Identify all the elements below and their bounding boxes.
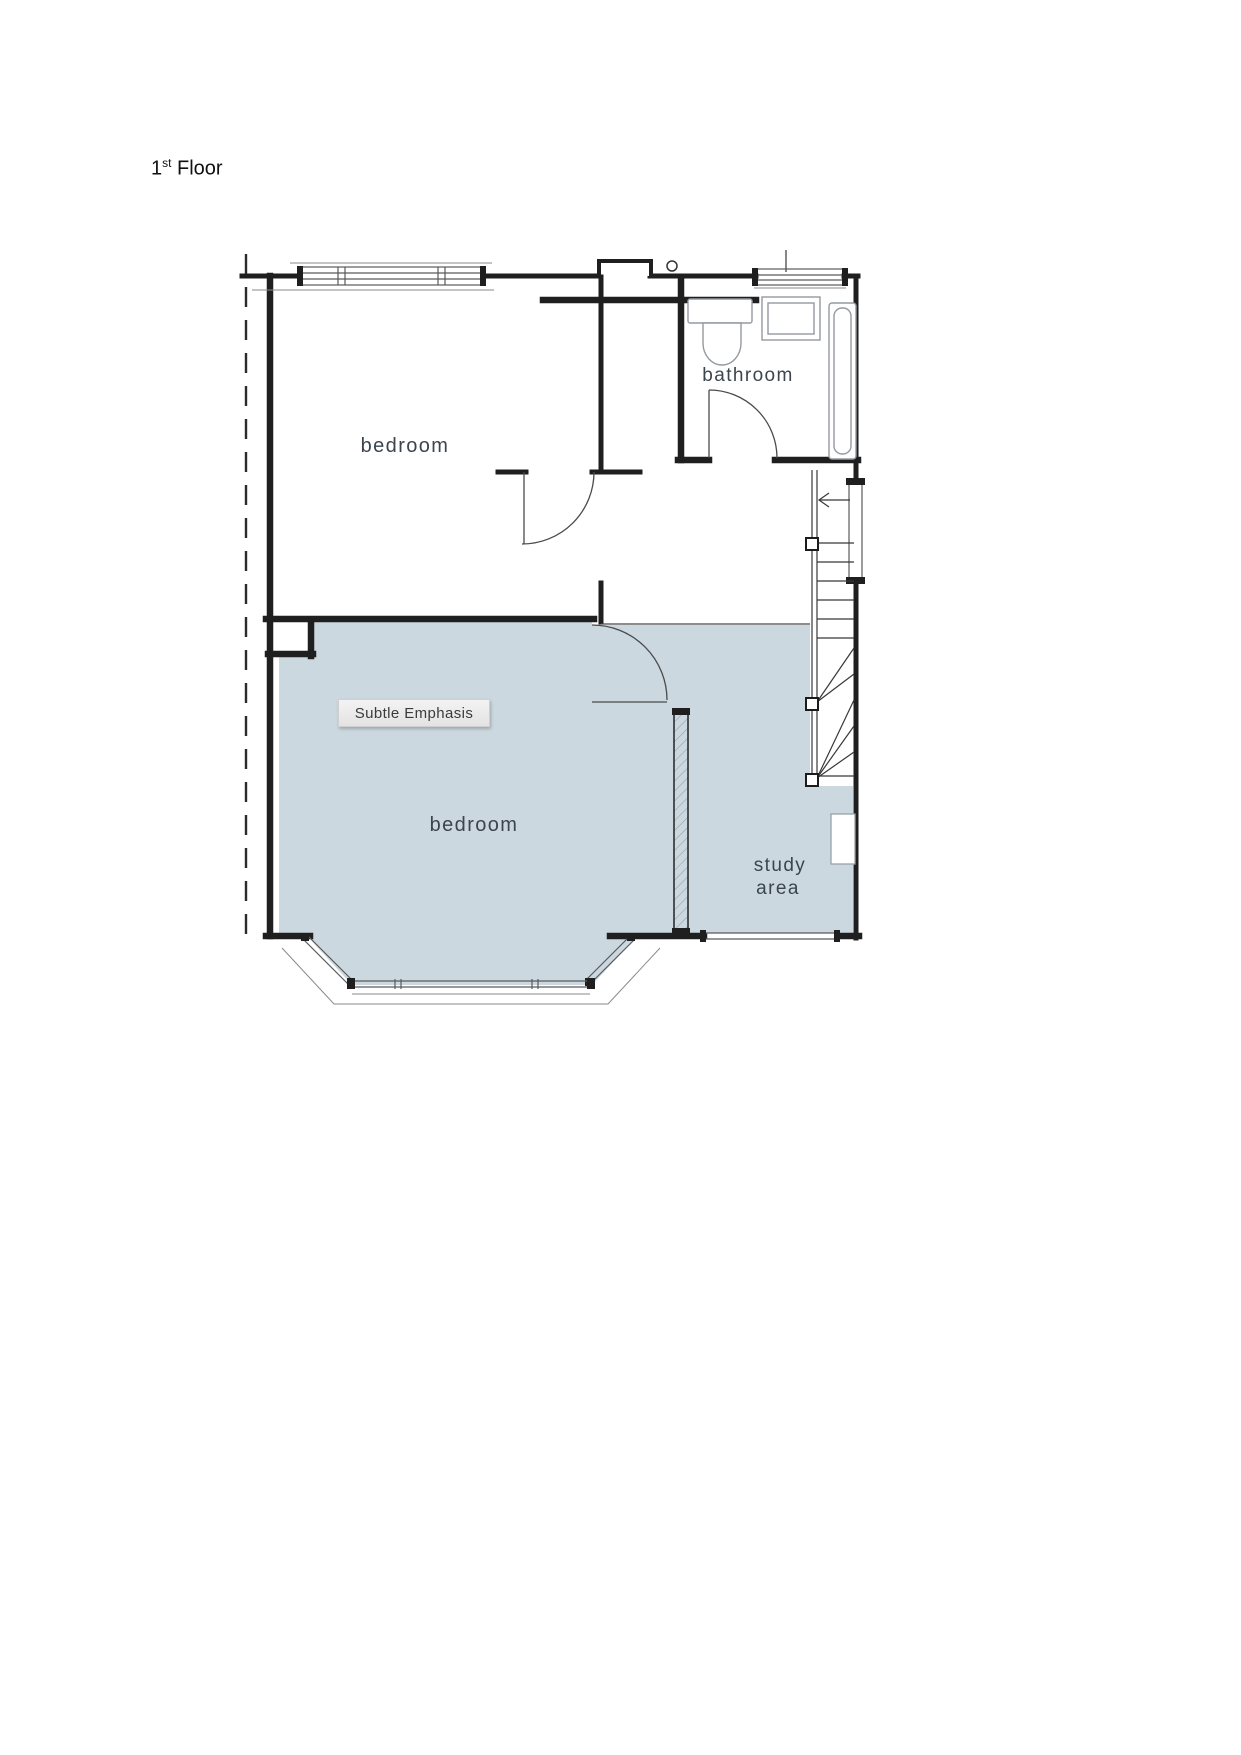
subtle-emphasis-style-label-text: Subtle Emphasis	[355, 705, 474, 722]
bathroom-door	[709, 390, 777, 458]
document-page: { "document": { "title_number": "1", "ti…	[0, 0, 1241, 1755]
newel-post	[806, 538, 818, 550]
bedroom-top-label: bedroom	[361, 435, 450, 457]
partition-wall	[672, 708, 690, 935]
stair-window	[846, 478, 865, 584]
bathroom-window	[752, 268, 848, 288]
bathtub	[829, 303, 856, 459]
toilet	[688, 299, 752, 365]
staircase	[806, 470, 854, 786]
sink	[762, 297, 820, 340]
highlight-region	[279, 622, 853, 985]
study-area-label-line1: study	[754, 855, 806, 876]
floor-plan-drawing: bedroom bathroom bedroom study area	[0, 0, 1241, 1755]
subtle-emphasis-style-label: Subtle Emphasis	[338, 699, 490, 727]
study-area-label-line2: area	[756, 878, 800, 899]
stair-direction-arrow	[819, 493, 850, 507]
newel-post	[806, 774, 818, 786]
newel-post	[806, 698, 818, 710]
bedroom-top-door	[498, 472, 640, 544]
bedroom-bottom-label: bedroom	[430, 814, 519, 836]
desk	[831, 814, 855, 864]
bathroom-label: bathroom	[702, 365, 793, 386]
vent-circle	[667, 261, 677, 271]
